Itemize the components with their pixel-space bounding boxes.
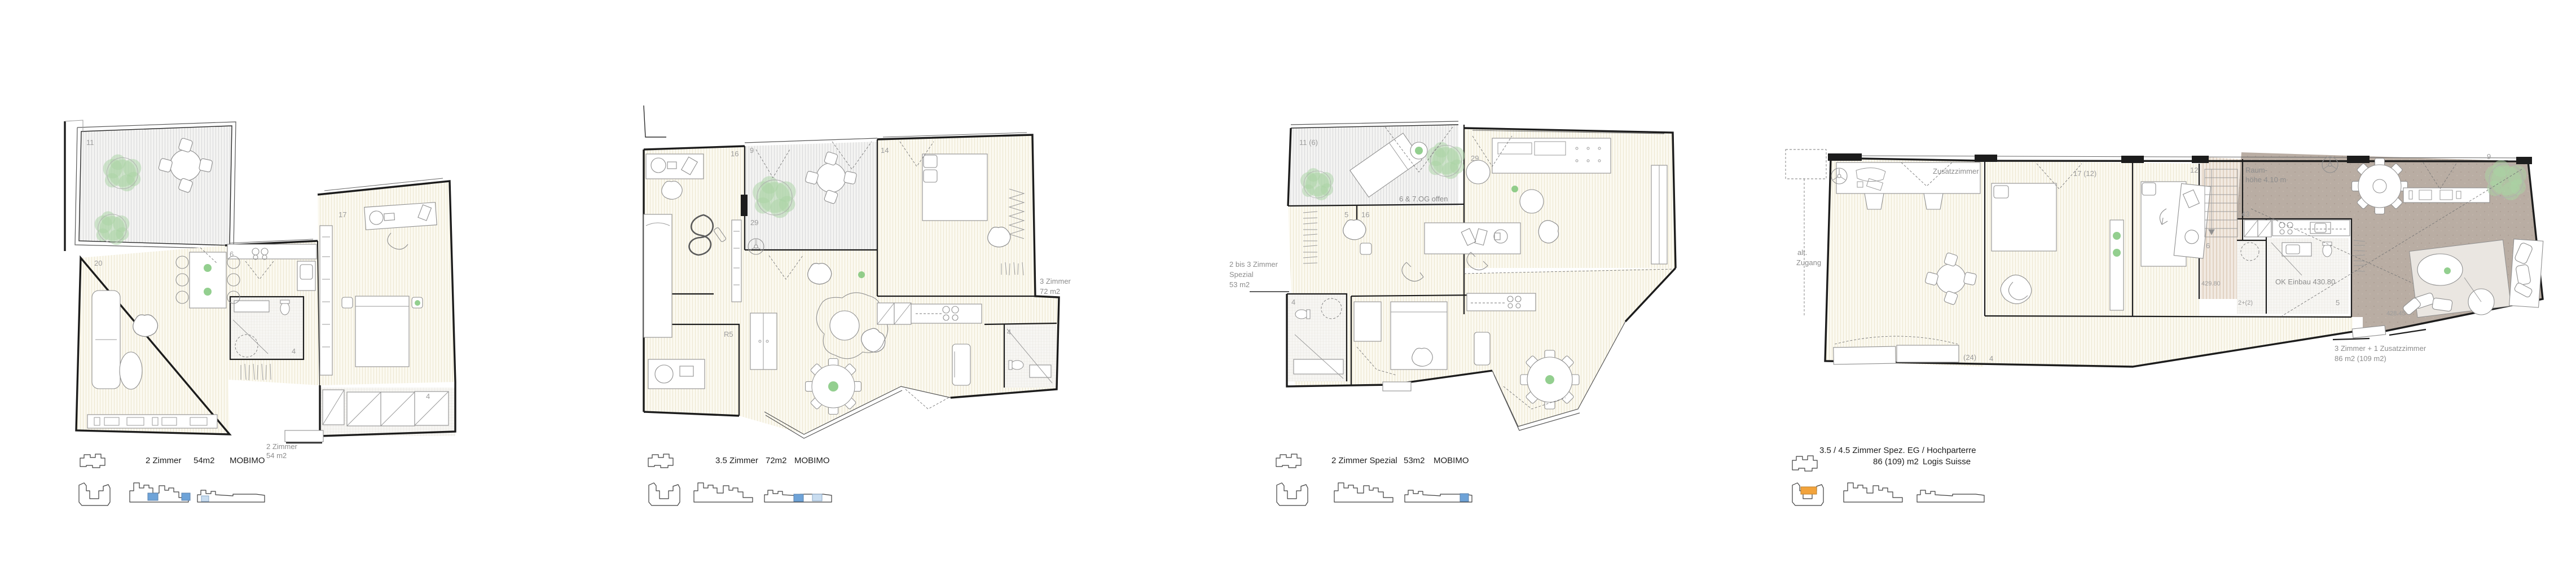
room-number-balcony: 9 [750,146,754,155]
room-number-study: 16 [731,149,738,158]
room-number-terrace: 11 [86,138,94,147]
unit-highlight [794,494,803,502]
unit-highlight [148,493,158,500]
room-number-bedroom: 14 [881,146,889,155]
floor-plan-3: 11 (6) 29 6 & 7.OG offen 5 16 4 [1216,104,1695,474]
label-ok-einbau: OK Einbau 430.80 [2275,278,2335,286]
room-number-bath: 4 [1007,328,1011,336]
caption-type: 3.5 / 4.5 Zimmer Spez. EG / Hochparterre [1819,446,1976,455]
caption-owner: MOBIMO [794,456,830,465]
room-number-bath: 4 [292,347,296,355]
room-number-bedroom1: 17 (12) [2073,169,2096,178]
floor-plan-4: alt. Zugang Zusatzzimmer (24) 4 17 (12) [1771,130,2576,448]
room-number-bath: 4 [1291,298,1295,306]
building-footprint-icon [78,449,114,469]
room-number-a: 5 [1344,210,1348,219]
room-number-living43: 43 [2241,210,2249,218]
plan-note: 6 & 7.OG offen [1399,195,1448,203]
caption-unit-3: 2 Zimmer Spezial 53m2 MOBIMO [1274,451,1539,536]
room-number-utility: R5 [724,330,733,338]
caption-owner: Logis Suisse [1923,457,1971,467]
label-raumhoehe2: höhe 4.10 m [2245,175,2286,184]
unit-highlight [812,494,822,501]
label-raumhoehe: Raum- [2245,166,2267,174]
caption-type: 2 Zimmer Spezial [1331,456,1397,465]
room-number-balcony9: 9 [2487,152,2491,161]
plan-annotation: 3 Zimmer [1040,277,1071,285]
room-number-living: 20 [94,259,102,267]
plan-annotation: Spezial [1229,270,1254,279]
plan-annotation: 53 m2 [1229,280,1250,289]
room-number-reduit: 2+(2) [2238,300,2253,306]
unit-highlight [1801,487,1817,494]
room-number-b: 16 [1361,210,1369,219]
caption-type: 2 Zimmer [146,456,181,465]
caption-area: 53m2 [1404,456,1425,465]
label-level-429: 429.80 [2201,280,2221,287]
plan-annotation: 2 Zimmer [266,442,298,451]
plan-annotation: 2 bis 3 Zimmer [1229,260,1278,269]
room-number-terrace: 11 (6) [1299,138,1318,147]
caption-area: 72m2 [766,456,787,465]
room-number-storage: 4 [426,392,430,401]
unit-highlight [1460,494,1469,502]
room-number-zusatz: (24) [1963,353,1976,362]
site-key [1786,474,1989,507]
label-level-428: 428.45 [2386,310,2406,317]
caption-area: 54m2 [194,456,215,465]
plan-annotation: 72 m2 [1040,287,1060,296]
room-number-bath5: 5 [2336,298,2340,307]
room-number-hall: 4 [1989,354,1993,363]
room-number-entry: 6 [2206,241,2210,250]
caption-unit-1: 2 Zimmer 54m2 MOBIMO [76,451,341,536]
floor-plan-2: 16 9 14 29 R5 4 3 Zi [635,104,1131,468]
caption-type: 3.5 Zimmer [715,456,758,465]
floor-plan-1: 11 4 17 [31,110,477,465]
room-number-bedroom: 17 [339,210,346,219]
building-footprint-icon [646,449,682,469]
unit-highlight [201,496,209,502]
site-key [75,475,278,508]
caption-unit-4: 3.5 / 4.5 Zimmer Spez. EG / Hochparterre… [1787,446,2081,530]
caption-unit-2: 3.5 Zimmer 72m2 MOBIMO [646,451,911,536]
floor-plan-sheet: 11 4 17 [0,0,2576,563]
room-number-living: 29 [1471,154,1479,162]
room-number-bedroom2: 12 [2190,166,2198,174]
plan-annotation: 86 m2 (109 m2) [2335,354,2386,363]
caption-owner: MOBIMO [230,456,265,465]
site-key [645,475,848,508]
building-footprint-icon [1274,449,1310,469]
room-number-kitchen: 6 [230,250,234,258]
caption-owner: MOBIMO [1434,456,1469,465]
label-alt: alt. [1797,248,1807,257]
site-key [1273,475,1476,508]
caption-area: 86 (109) m2 [1873,457,1919,467]
label-zugang: Zugang [1796,258,1821,267]
room-number-living: 29 [750,218,758,227]
plan-annotation: 3 Zimmer + 1 Zusatzzimmer [2335,344,2426,353]
unit-highlight [182,493,190,500]
